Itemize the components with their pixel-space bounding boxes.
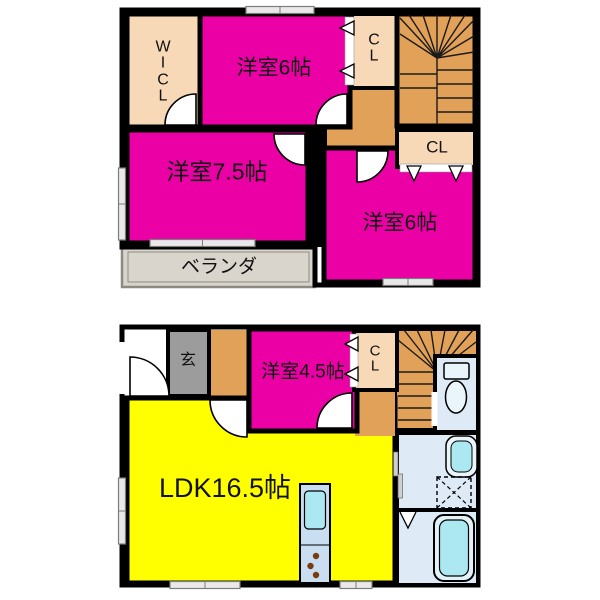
floor-plan-drawing [0,0,600,600]
toilet-room [432,356,479,432]
toilet-icon [444,363,469,413]
wicl-label: W I C L [155,39,170,104]
washroom [394,433,479,510]
entrance-label: 玄 [180,353,196,369]
bathroom [397,510,478,585]
floor-plan: W I C L 洋室6帖 C L CL 洋室6帖 洋室7.5帖 ベランダ 玄 洋… [0,0,600,600]
kitchen-counter [300,484,330,583]
bathtub-icon [434,515,474,581]
sink-icon [446,436,477,477]
veranda-label: ベランダ [181,257,257,276]
ldk-label: LDK16.5帖 [159,475,291,503]
bedroom6-right-label: 洋室6帖 [363,212,438,233]
upper-floor-plan [119,7,479,288]
stairs-icon [397,14,475,126]
bedroom45-label: 洋室4.5帖 [261,362,344,381]
closet-top-label: C L [368,33,380,66]
bedroom75-label: 洋室7.5帖 [167,160,268,183]
hall [355,390,395,436]
porch-opening [117,342,125,394]
closet-mid-label: CL [426,138,448,155]
kitchen-sink-icon [305,491,326,529]
hall [205,330,250,398]
closet-lower-label: C L [370,344,381,375]
door-opening [432,392,438,426]
bedroom6-top-label: 洋室6帖 [237,57,312,78]
